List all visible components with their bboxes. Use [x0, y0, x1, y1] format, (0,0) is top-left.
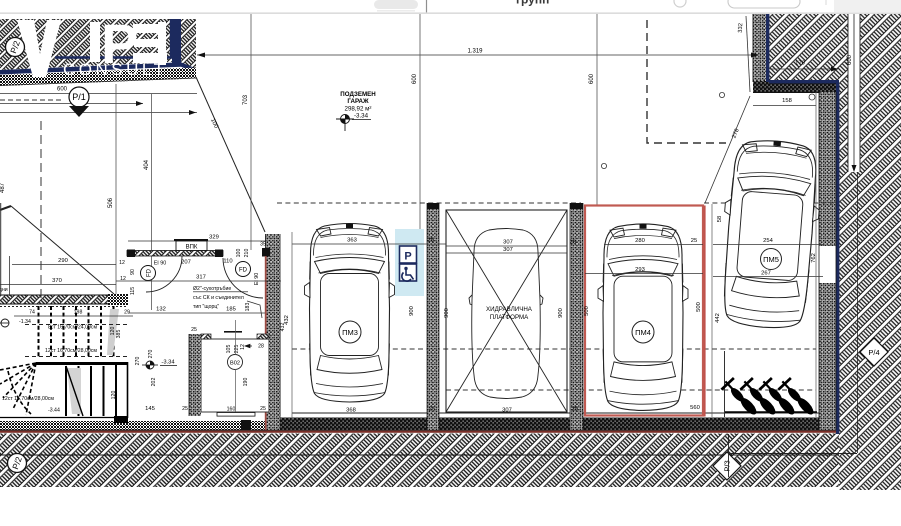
svg-text:-3.44: -3.44 — [48, 408, 60, 414]
svg-text:254: 254 — [763, 238, 773, 244]
svg-text:307: 307 — [502, 408, 512, 414]
svg-text:170: 170 — [795, 61, 805, 67]
svg-text:307: 307 — [503, 240, 513, 246]
svg-text:25: 25 — [428, 238, 434, 244]
svg-text:25: 25 — [572, 407, 578, 413]
svg-text:190: 190 — [243, 378, 249, 387]
svg-text:432: 432 — [280, 323, 286, 332]
svg-text:329: 329 — [209, 235, 219, 241]
svg-text:25: 25 — [691, 238, 697, 244]
svg-text:ПОДЗЕМЕН: ПОДЗЕМЕН — [340, 91, 376, 98]
svg-text:267: 267 — [761, 271, 771, 277]
svg-text:-1.34: -1.34 — [19, 319, 31, 325]
svg-text:ПМ4: ПМ4 — [635, 328, 651, 337]
svg-text:270: 270 — [148, 350, 154, 359]
svg-text:600: 600 — [57, 87, 68, 93]
svg-text:132: 132 — [156, 307, 166, 313]
svg-text:ПЛАТФОРМА: ПЛАТФОРМА — [490, 314, 529, 321]
svg-text:290: 290 — [58, 258, 68, 264]
svg-text:1.319: 1.319 — [467, 49, 483, 55]
svg-text:B02: B02 — [230, 361, 240, 367]
svg-text:28: 28 — [258, 344, 264, 350]
svg-text:FD: FD — [147, 268, 153, 277]
svg-text:ХИДРАВЛИЧНА: ХИДРАВЛИЧНА — [486, 306, 533, 313]
svg-text:тип "щорц": тип "щорц" — [193, 304, 219, 310]
svg-text:FD: FD — [239, 268, 248, 274]
svg-text:500: 500 — [696, 302, 702, 312]
svg-text:317: 317 — [196, 275, 206, 281]
svg-text:-3.34: -3.34 — [161, 360, 175, 366]
svg-text:12: 12 — [119, 260, 125, 266]
svg-text:210: 210 — [244, 249, 250, 258]
svg-text:600: 600 — [589, 73, 595, 84]
svg-text:385: 385 — [116, 330, 122, 339]
svg-text:групп: групп — [516, 0, 549, 6]
svg-text:370: 370 — [52, 278, 62, 284]
svg-text:35: 35 — [260, 242, 266, 248]
svg-text:293: 293 — [635, 267, 645, 273]
svg-text:487: 487 — [0, 182, 6, 193]
svg-text:P/1: P/1 — [72, 92, 86, 102]
svg-text:12ст 16,70см/28,00см: 12ст 16,70см/28,00см — [2, 396, 54, 402]
svg-text:100: 100 — [236, 249, 242, 258]
svg-text:442: 442 — [715, 313, 721, 323]
svg-text:58: 58 — [717, 216, 723, 222]
svg-text:198: 198 — [74, 310, 83, 316]
svg-text:600: 600 — [847, 54, 853, 65]
svg-text:115: 115 — [130, 287, 136, 295]
svg-text:270: 270 — [135, 357, 141, 366]
svg-text:ВПК: ВПК — [186, 245, 198, 251]
svg-text:298,92 м²: 298,92 м² — [345, 106, 372, 113]
svg-text:ГАРАЖ: ГАРАЖ — [347, 98, 369, 105]
svg-text:363: 363 — [347, 238, 357, 244]
svg-text:29: 29 — [124, 310, 130, 316]
svg-text:P: P — [404, 251, 411, 263]
svg-text:12: 12 — [240, 344, 246, 350]
svg-text:404: 404 — [144, 159, 150, 170]
svg-text:332: 332 — [738, 23, 744, 33]
svg-text:ПМ5: ПМ5 — [763, 255, 779, 264]
svg-text:207: 207 — [181, 260, 191, 266]
svg-text:25: 25 — [260, 406, 266, 412]
svg-text:120: 120 — [111, 391, 117, 400]
svg-text:74: 74 — [29, 310, 35, 316]
svg-text:25: 25 — [570, 240, 576, 246]
svg-text:P/3: P/3 — [723, 460, 732, 471]
svg-text:560: 560 — [690, 405, 700, 411]
svg-text:25: 25 — [429, 407, 435, 413]
svg-text:506: 506 — [108, 197, 114, 208]
svg-text:600: 600 — [412, 73, 418, 84]
svg-text:8ст 16,70см/24,00см: 8ст 16,70см/24,00см — [48, 325, 97, 331]
svg-text:EI 90: EI 90 — [154, 261, 167, 267]
svg-text:ПМ3: ПМ3 — [342, 328, 358, 337]
svg-text:183: 183 — [245, 303, 251, 312]
svg-text:900: 900 — [409, 306, 415, 316]
svg-text:25: 25 — [182, 406, 188, 412]
svg-text:307: 307 — [503, 247, 513, 253]
svg-text:500: 500 — [584, 306, 590, 316]
svg-text:90: 90 — [130, 269, 136, 275]
svg-text:EI 90: EI 90 — [254, 273, 260, 286]
svg-text:185: 185 — [226, 307, 236, 313]
svg-text:Ø2"-сухотръбие: Ø2"-сухотръбие — [193, 286, 231, 292]
svg-text:900: 900 — [444, 308, 450, 318]
svg-text:145: 145 — [145, 406, 155, 412]
svg-text:110: 110 — [223, 259, 232, 265]
svg-text:-3.34: -3.34 — [354, 113, 369, 120]
svg-text:703: 703 — [243, 94, 249, 105]
svg-text:158: 158 — [782, 98, 792, 104]
svg-text:105: 105 — [226, 345, 232, 354]
svg-text:25: 25 — [191, 327, 197, 333]
svg-text:12ст 16,70см/28,00см: 12ст 16,70см/28,00см — [45, 348, 97, 354]
svg-text:368: 368 — [346, 408, 356, 414]
svg-text:CONSULT: CONSULT — [63, 60, 167, 79]
svg-text:280: 280 — [635, 238, 645, 244]
svg-text:P/4: P/4 — [868, 348, 879, 357]
svg-text:със СК и съединител: със СК и съединител — [193, 295, 244, 301]
svg-text:160: 160 — [227, 407, 236, 413]
svg-text:202: 202 — [151, 378, 157, 387]
svg-text:900: 900 — [558, 308, 564, 318]
